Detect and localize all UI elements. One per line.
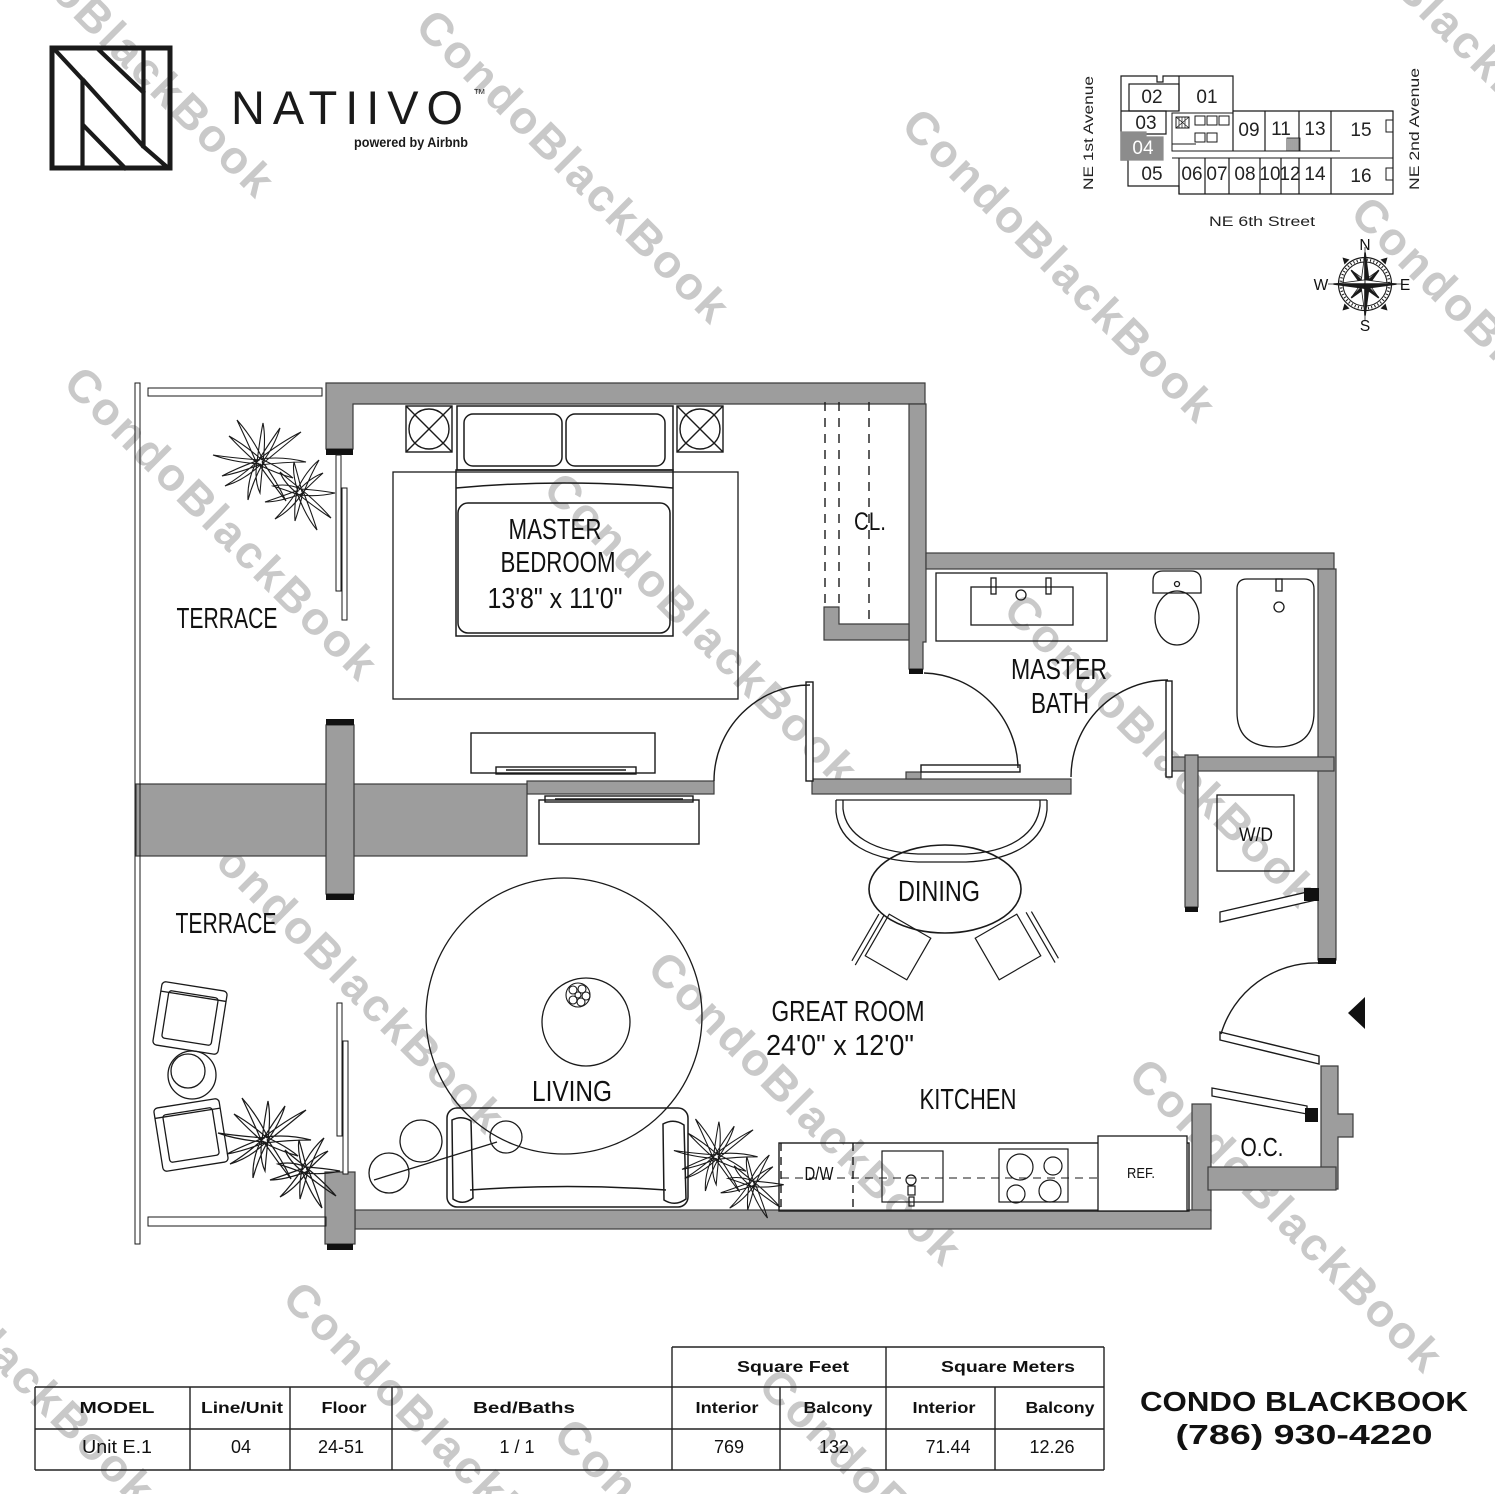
svg-text:NE 2nd Avenue: NE 2nd Avenue [1407, 68, 1422, 190]
svg-text:01: 01 [1196, 87, 1217, 108]
svg-text:15: 15 [1350, 120, 1371, 141]
svg-text:Bed/Baths: Bed/Baths [473, 1400, 575, 1417]
svg-text:07: 07 [1206, 164, 1227, 185]
svg-text:LIVING: LIVING [532, 1076, 612, 1108]
svg-text:TM: TM [474, 87, 485, 96]
svg-text:NATIIVO: NATIIVO [231, 81, 471, 134]
svg-text:CL.: CL. [854, 508, 886, 536]
svg-text:MASTER: MASTER [509, 514, 602, 546]
svg-text:05: 05 [1141, 164, 1162, 185]
svg-text:Unit E.1: Unit E.1 [82, 1437, 152, 1457]
svg-text:Interior: Interior [913, 1400, 976, 1417]
svg-text:Balcony: Balcony [804, 1400, 873, 1417]
svg-text:CONDO BLACKBOOK: CONDO BLACKBOOK [1140, 1386, 1468, 1417]
svg-text:1 / 1: 1 / 1 [499, 1437, 534, 1457]
svg-text:11: 11 [1271, 119, 1291, 140]
svg-text:E: E [1400, 277, 1410, 294]
svg-text:W/D: W/D [1239, 825, 1273, 846]
svg-text:MODEL: MODEL [80, 1400, 155, 1417]
svg-text:13'8" x 11'0": 13'8" x 11'0" [488, 583, 623, 615]
svg-text:NE 6th Street: NE 6th Street [1209, 214, 1315, 229]
svg-text:GREAT ROOM: GREAT ROOM [772, 996, 925, 1028]
svg-text:powered by Airbnb: powered by Airbnb [354, 135, 468, 150]
svg-text:16: 16 [1350, 166, 1371, 187]
svg-text:BEDROOM: BEDROOM [501, 547, 616, 579]
svg-text:769: 769 [714, 1437, 744, 1457]
svg-text:REF.: REF. [1127, 1165, 1155, 1182]
svg-text:02: 02 [1141, 87, 1162, 108]
svg-text:Line/Unit: Line/Unit [201, 1400, 284, 1417]
svg-text:Floor: Floor [322, 1400, 367, 1417]
svg-text:NE 1st Avenue: NE 1st Avenue [1081, 76, 1096, 190]
svg-text:KITCHEN: KITCHEN [920, 1084, 1017, 1116]
svg-text:BATH: BATH [1031, 688, 1089, 720]
svg-text:Square Meters: Square Meters [941, 1359, 1075, 1376]
svg-text:03: 03 [1135, 113, 1156, 134]
svg-text:Balcony: Balcony [1026, 1400, 1095, 1417]
svg-text:04: 04 [231, 1437, 251, 1457]
svg-text:10: 10 [1259, 164, 1280, 185]
svg-text:TERRACE: TERRACE [177, 603, 278, 635]
svg-text:24'0" x 12'0": 24'0" x 12'0" [766, 1030, 914, 1062]
svg-text:71.44: 71.44 [925, 1437, 970, 1457]
svg-text:08: 08 [1234, 164, 1255, 185]
svg-text:MASTER: MASTER [1011, 654, 1107, 686]
svg-text:(786) 930-4220: (786) 930-4220 [1176, 1419, 1433, 1450]
svg-text:12: 12 [1279, 164, 1300, 185]
svg-text:DINING: DINING [898, 876, 980, 908]
svg-text:14: 14 [1304, 164, 1326, 185]
svg-text:O.C.: O.C. [1241, 1132, 1284, 1162]
svg-text:N: N [1359, 237, 1370, 254]
svg-text:S: S [1360, 318, 1370, 335]
svg-text:24-51: 24-51 [318, 1437, 364, 1457]
svg-text:06: 06 [1181, 164, 1202, 185]
svg-text:12.26: 12.26 [1029, 1437, 1074, 1457]
svg-text:04: 04 [1132, 138, 1154, 159]
svg-text:Square Feet: Square Feet [737, 1359, 850, 1376]
svg-text:13: 13 [1304, 119, 1325, 140]
svg-text:132: 132 [819, 1437, 849, 1457]
svg-text:D/W: D/W [805, 1164, 834, 1184]
svg-text:Interior: Interior [696, 1400, 759, 1417]
svg-text:W: W [1314, 277, 1329, 294]
svg-text:09: 09 [1238, 120, 1259, 141]
svg-text:TERRACE: TERRACE [176, 908, 277, 940]
